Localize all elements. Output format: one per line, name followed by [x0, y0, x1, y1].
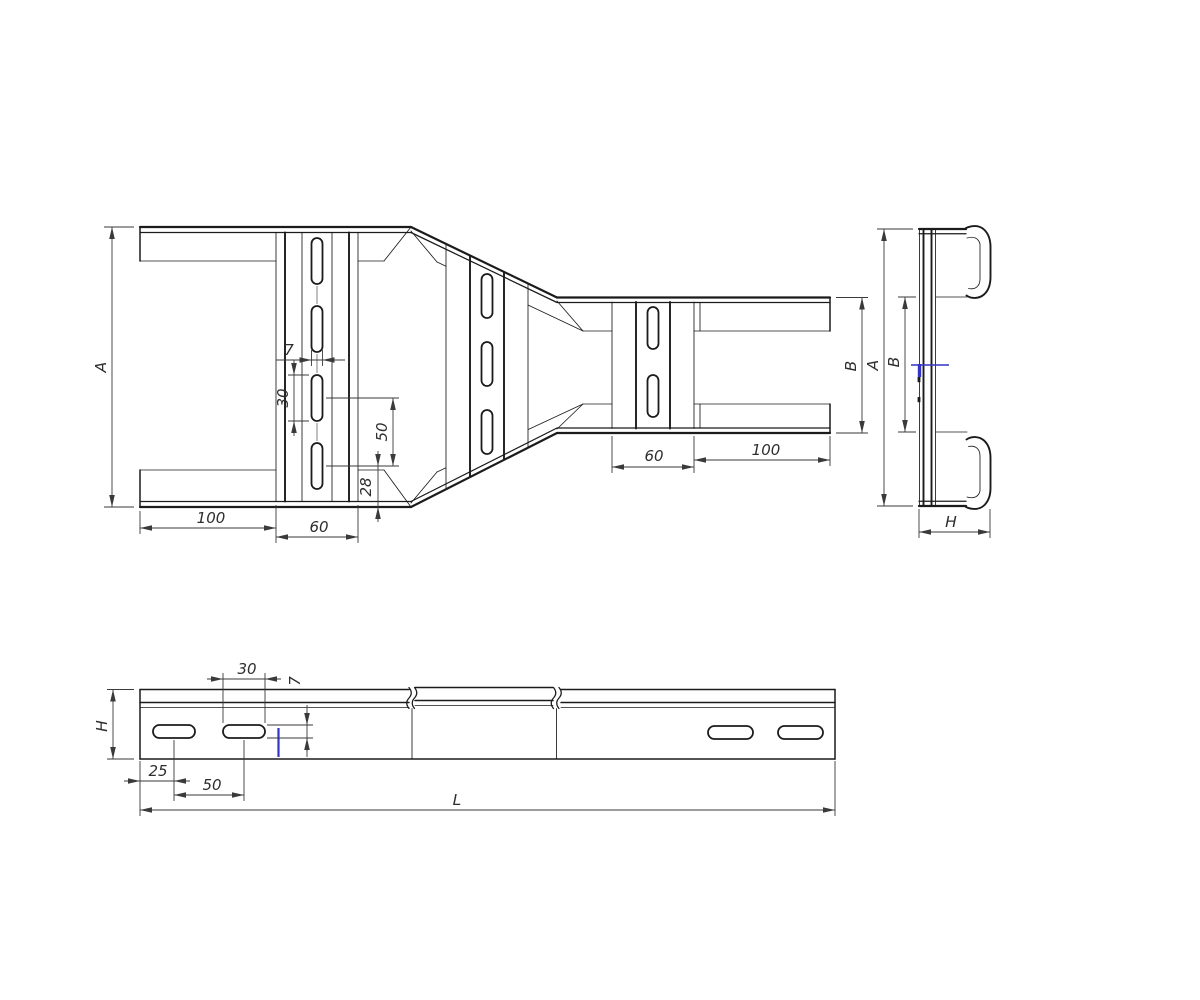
narrow-side-rails [557, 298, 830, 434]
dim-label: A [92, 362, 110, 374]
dim-label: 30 [237, 660, 256, 678]
dim-plan-slot-pitch: 50 [326, 398, 399, 466]
slot [153, 725, 195, 738]
slot [223, 725, 265, 738]
side-elevation-view: H 30 7 25 [93, 660, 835, 816]
slot [312, 443, 323, 489]
dim-plan-slot-edge-offset: 28 [357, 451, 378, 522]
dim-label: 25 [148, 762, 167, 780]
dim-plan-end-to-rung: 100 [140, 505, 276, 543]
dim-plan-overall-width: A [92, 227, 134, 507]
plan-view: A 7 30 50 [92, 227, 868, 543]
dim-side-end-to-slot: 25 [124, 740, 190, 816]
dim-label: L [453, 791, 462, 809]
dim-label: 60 [644, 447, 663, 465]
dim-label: 30 [274, 388, 292, 407]
web-notch [918, 377, 921, 382]
dim-plan-slot-length: 30 [274, 360, 309, 436]
dim-label: B [885, 357, 903, 368]
narrow-rung [612, 302, 694, 429]
slot [648, 307, 659, 349]
end-view: A B H [864, 226, 991, 538]
dim-label: 60 [309, 518, 328, 536]
transition-rails [411, 227, 583, 507]
dim-label: A [864, 360, 882, 372]
web-notch [918, 397, 921, 402]
rail-profile [918, 226, 991, 509]
dim-label: 50 [202, 776, 221, 794]
reducer-drawing-canvas: A 7 30 50 [0, 0, 1200, 1000]
dim-side-slot-length: 30 [207, 660, 281, 723]
blue-reference-mark [911, 364, 949, 377]
slot [312, 375, 323, 421]
dim-label: 100 [752, 441, 781, 459]
dim-label: H [93, 720, 111, 732]
wide-rung [276, 233, 358, 502]
dim-side-rail-height: H [93, 690, 134, 760]
dim-label: 28 [357, 477, 375, 496]
dim-plan-wide-rung-width: 60 [276, 505, 358, 543]
slot [312, 238, 323, 284]
dim-label: 50 [373, 422, 391, 441]
slot [708, 726, 753, 739]
dim-side-slot-width: 7 [267, 676, 313, 757]
dim-side-slot-pitch: 50 [174, 740, 244, 801]
dim-label: 7 [284, 341, 294, 359]
dim-plan-narrow-rung-width: 60 [612, 436, 694, 473]
dim-label: H [945, 513, 957, 531]
technical-drawing-sheet: A 7 30 50 [0, 0, 1200, 1000]
slot [312, 306, 323, 352]
slot [648, 375, 659, 417]
dim-end-rail-depth: H [919, 509, 990, 538]
slot [482, 274, 493, 318]
dim-plan-slot-width: 7 [276, 341, 345, 366]
dim-plan-rung-to-end: 100 [694, 436, 830, 466]
slot [778, 726, 823, 739]
slot [482, 342, 493, 386]
dim-label: B [842, 361, 860, 372]
wide-side-rails [140, 227, 411, 507]
dim-label: 7 [286, 676, 304, 686]
dim-label: 100 [197, 509, 226, 527]
slot [482, 410, 493, 454]
